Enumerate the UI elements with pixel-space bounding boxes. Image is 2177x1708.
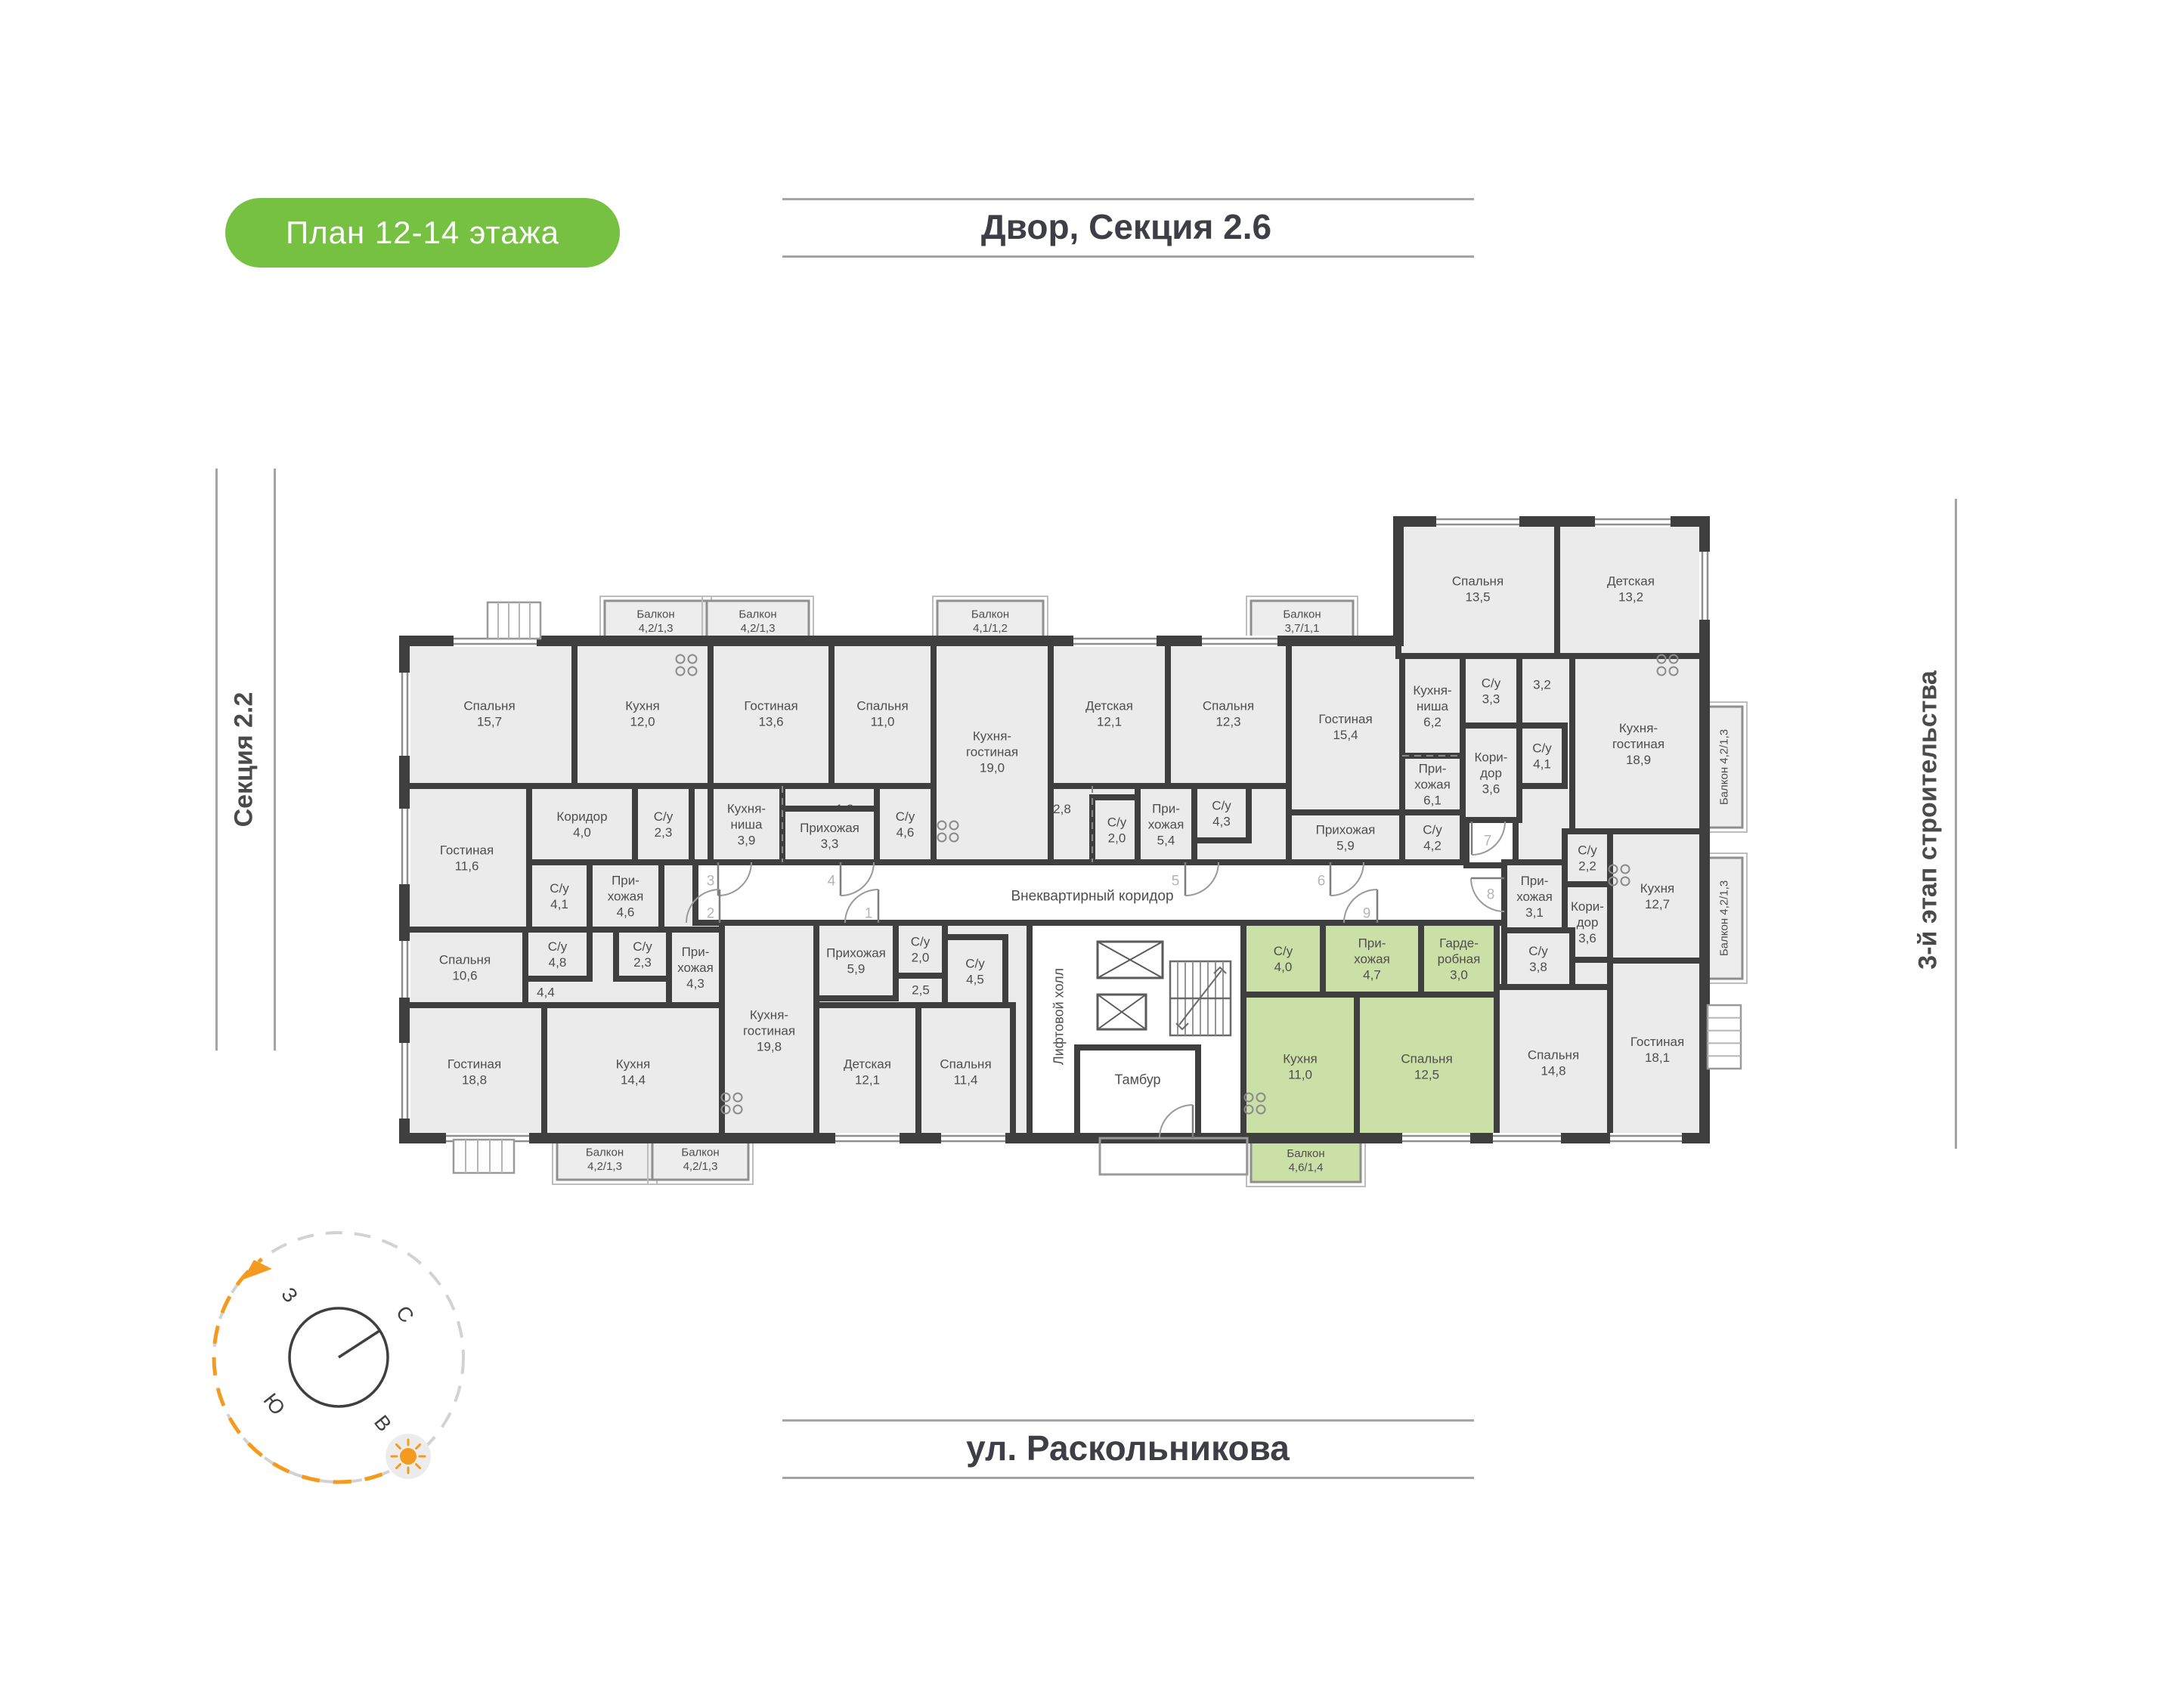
- room[interactable]: [1398, 521, 1557, 656]
- room-label: Тамбур: [1114, 1072, 1160, 1087]
- room[interactable]: [616, 930, 669, 979]
- window: [1436, 516, 1519, 528]
- room-label: 7: [1484, 834, 1492, 849]
- floor-plan: Балкон4,2/1,3Балкон4,2/1,3Балкон4,1/1,2Б…: [0, 0, 2177, 1708]
- room-label: 1: [865, 906, 873, 922]
- room[interactable]: [1497, 987, 1610, 1138]
- room-label: Балкон3,7/1,1: [1283, 608, 1321, 635]
- room-label: 9: [1363, 906, 1371, 922]
- compass-arrow: [243, 1260, 272, 1279]
- room[interactable]: [782, 809, 877, 862]
- room-label: Внеквартирный коридор: [1011, 889, 1173, 905]
- balcony[interactable]: [1251, 1138, 1361, 1182]
- room[interactable]: [544, 1005, 722, 1138]
- ac-basket: [454, 1140, 514, 1173]
- room-label: 2,5: [912, 982, 930, 997]
- room-label: 2,8: [1053, 802, 1071, 816]
- room[interactable]: [1610, 961, 1705, 1138]
- room-highlighted[interactable]: [1243, 923, 1323, 995]
- room[interactable]: [896, 923, 945, 976]
- window: [399, 673, 410, 756]
- room[interactable]: [877, 786, 934, 862]
- window: [835, 1133, 900, 1144]
- room[interactable]: [529, 786, 635, 862]
- room[interactable]: [635, 786, 692, 862]
- corridor-area: [1077, 1047, 1198, 1138]
- room[interactable]: [404, 1005, 544, 1138]
- room-label: 8: [1487, 887, 1495, 903]
- room[interactable]: [1168, 641, 1289, 786]
- room-label: 5: [1172, 874, 1180, 890]
- room-label: Балкон4,2/1,3: [636, 608, 674, 635]
- room-highlighted[interactable]: [1243, 995, 1357, 1138]
- window: [399, 809, 410, 884]
- room[interactable]: [1289, 641, 1402, 812]
- room[interactable]: [1565, 831, 1610, 884]
- room[interactable]: [1402, 812, 1463, 862]
- room[interactable]: [1519, 726, 1565, 786]
- room[interactable]: [1504, 930, 1572, 987]
- window: [941, 1133, 1005, 1144]
- window: [1699, 552, 1711, 620]
- window: [1493, 1133, 1561, 1144]
- room[interactable]: [1463, 656, 1519, 726]
- ac-basket: [488, 602, 540, 639]
- balcony[interactable]: [557, 1138, 652, 1180]
- room[interactable]: [831, 641, 934, 786]
- room[interactable]: [1194, 786, 1249, 840]
- room[interactable]: [525, 930, 590, 979]
- entrance-canopy: [1100, 1138, 1247, 1174]
- room[interactable]: [404, 930, 525, 1005]
- sun-icon: [400, 1448, 417, 1465]
- room[interactable]: [1557, 521, 1705, 656]
- room[interactable]: [529, 862, 590, 930]
- room-label: 4: [828, 874, 836, 890]
- room-label: Балкон4,1/1,2: [971, 608, 1009, 635]
- window: [1402, 1133, 1470, 1144]
- room[interactable]: [816, 923, 896, 998]
- room-label: Балкон4,2/1,3: [681, 1146, 719, 1173]
- room[interactable]: [1289, 812, 1402, 862]
- room[interactable]: [945, 937, 1005, 1005]
- ac-basket: [1708, 1005, 1741, 1069]
- room[interactable]: [404, 786, 529, 930]
- room-label: Балкон4,2/1,3: [586, 1146, 624, 1173]
- page: План 12-14 этажа Двор, Секция 2.6 ул. Ра…: [0, 0, 2177, 1708]
- room-label: 3: [707, 874, 715, 890]
- room-label: Балкон4,2/1,3: [739, 608, 776, 635]
- room[interactable]: [816, 1005, 918, 1138]
- room[interactable]: [1092, 797, 1141, 862]
- compass-letter-north: С: [392, 1301, 419, 1327]
- window: [1202, 636, 1277, 647]
- window: [399, 941, 410, 998]
- room-label: 4,4: [537, 985, 555, 999]
- window: [1073, 636, 1157, 647]
- room-label: Балкон4,6/1,4: [1287, 1147, 1324, 1174]
- room-label: 6: [1318, 874, 1326, 890]
- balcony[interactable]: [652, 1138, 748, 1180]
- room-label: Балкон 4,2/1,3: [1717, 880, 1730, 956]
- room-label: 2: [707, 906, 715, 922]
- compass-letter-east: В: [370, 1411, 396, 1436]
- room[interactable]: [404, 641, 574, 786]
- room[interactable]: [1610, 831, 1705, 961]
- room-label: Балкон 4,2/1,3: [1717, 729, 1730, 805]
- room-label: 3,2: [1533, 677, 1551, 692]
- room[interactable]: [1051, 641, 1168, 786]
- room[interactable]: [711, 641, 831, 786]
- room[interactable]: [918, 1005, 1013, 1138]
- room-highlighted[interactable]: [1357, 995, 1497, 1138]
- compass-letter-south: Ю: [259, 1389, 289, 1419]
- compass-letter-west: З: [277, 1283, 302, 1307]
- window: [399, 1043, 410, 1119]
- window: [1595, 516, 1671, 528]
- window: [1610, 1133, 1682, 1144]
- room-label: Лифтовой холл: [1051, 968, 1066, 1065]
